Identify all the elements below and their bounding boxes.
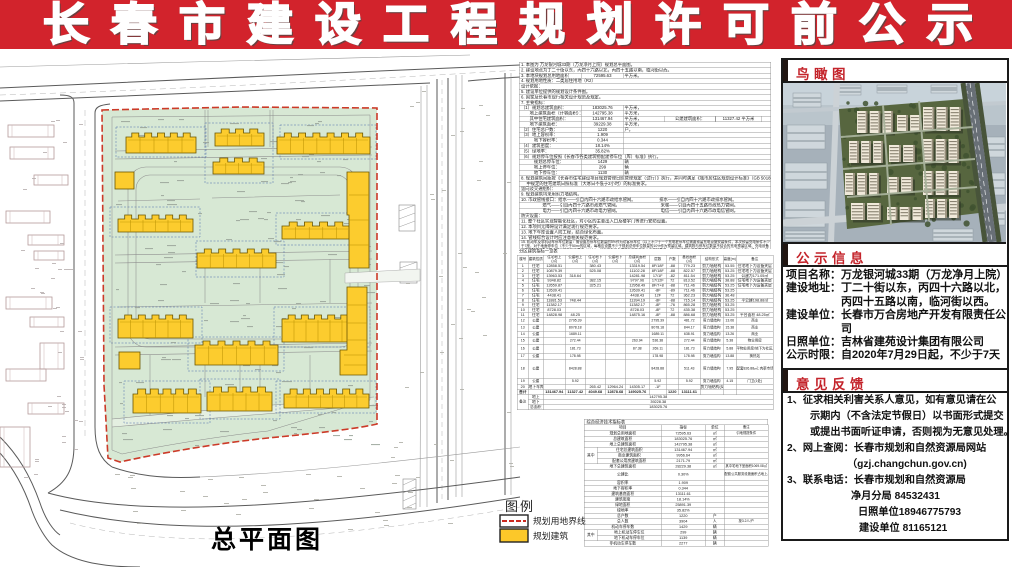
svg-text:规划建筑: 规划建筑 [533, 530, 568, 541]
svg-text:规划用地界线: 规划用地界线 [533, 515, 586, 526]
svg-text:图例: 图例 [505, 499, 535, 514]
svg-text:总平面图: 总平面图 [211, 526, 323, 554]
